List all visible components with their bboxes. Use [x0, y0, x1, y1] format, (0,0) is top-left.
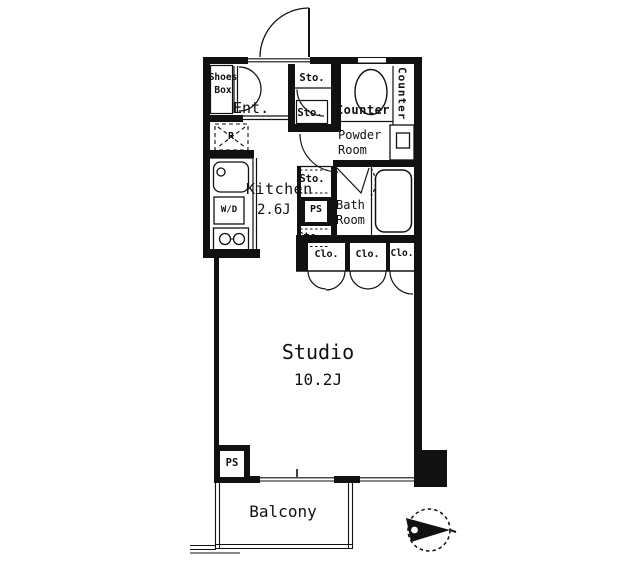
- sink-icon: [214, 162, 249, 192]
- bath-room-label: Bath Room: [336, 198, 365, 227]
- closet-doors: [296, 271, 414, 294]
- shoes-box-label: Shoes Box: [204, 72, 242, 97]
- powder-room-label: Powder Room: [338, 128, 381, 158]
- storage-entrance-label: Sto.: [294, 72, 330, 84]
- studio-size-label: 10.2J: [268, 371, 368, 389]
- compass-icon: [406, 509, 456, 551]
- floorplan-page: Shoes Box Ent. Sto. Sto. Counter Counter…: [0, 0, 640, 569]
- entrance-label: Ent.: [233, 100, 269, 117]
- kitchen-label: Kitchen: [246, 181, 313, 198]
- pipe-space-studio-label: PS: [214, 457, 250, 469]
- closet-3-label: Clo.: [389, 249, 415, 260]
- entrance-door: [248, 8, 310, 62]
- kitchen-size-label: 2.6J: [257, 202, 291, 218]
- refrigerator-label: R: [224, 131, 238, 143]
- stove-icon: [214, 228, 249, 250]
- vanity-sink-icon: [390, 125, 414, 160]
- pipe-space-hall-label: PS: [301, 204, 331, 216]
- counter-powder-label: Counter: [331, 104, 395, 118]
- counter-toilet-label: Counter: [395, 67, 408, 129]
- storage-hall-lower-label: Sto.: [292, 231, 328, 243]
- walls: [203, 57, 447, 487]
- closet-2-label: Clo.: [349, 249, 386, 261]
- bathtub-icon: [376, 170, 412, 232]
- washer-dryer-label: W/D: [214, 205, 244, 215]
- storage-hall-upper-label: Sto.: [292, 107, 328, 119]
- closet-1-label: Clo.: [308, 249, 345, 261]
- floorplan-drawing: [0, 0, 640, 569]
- studio-label: Studio: [268, 341, 368, 364]
- balcony-label: Balcony: [233, 503, 333, 521]
